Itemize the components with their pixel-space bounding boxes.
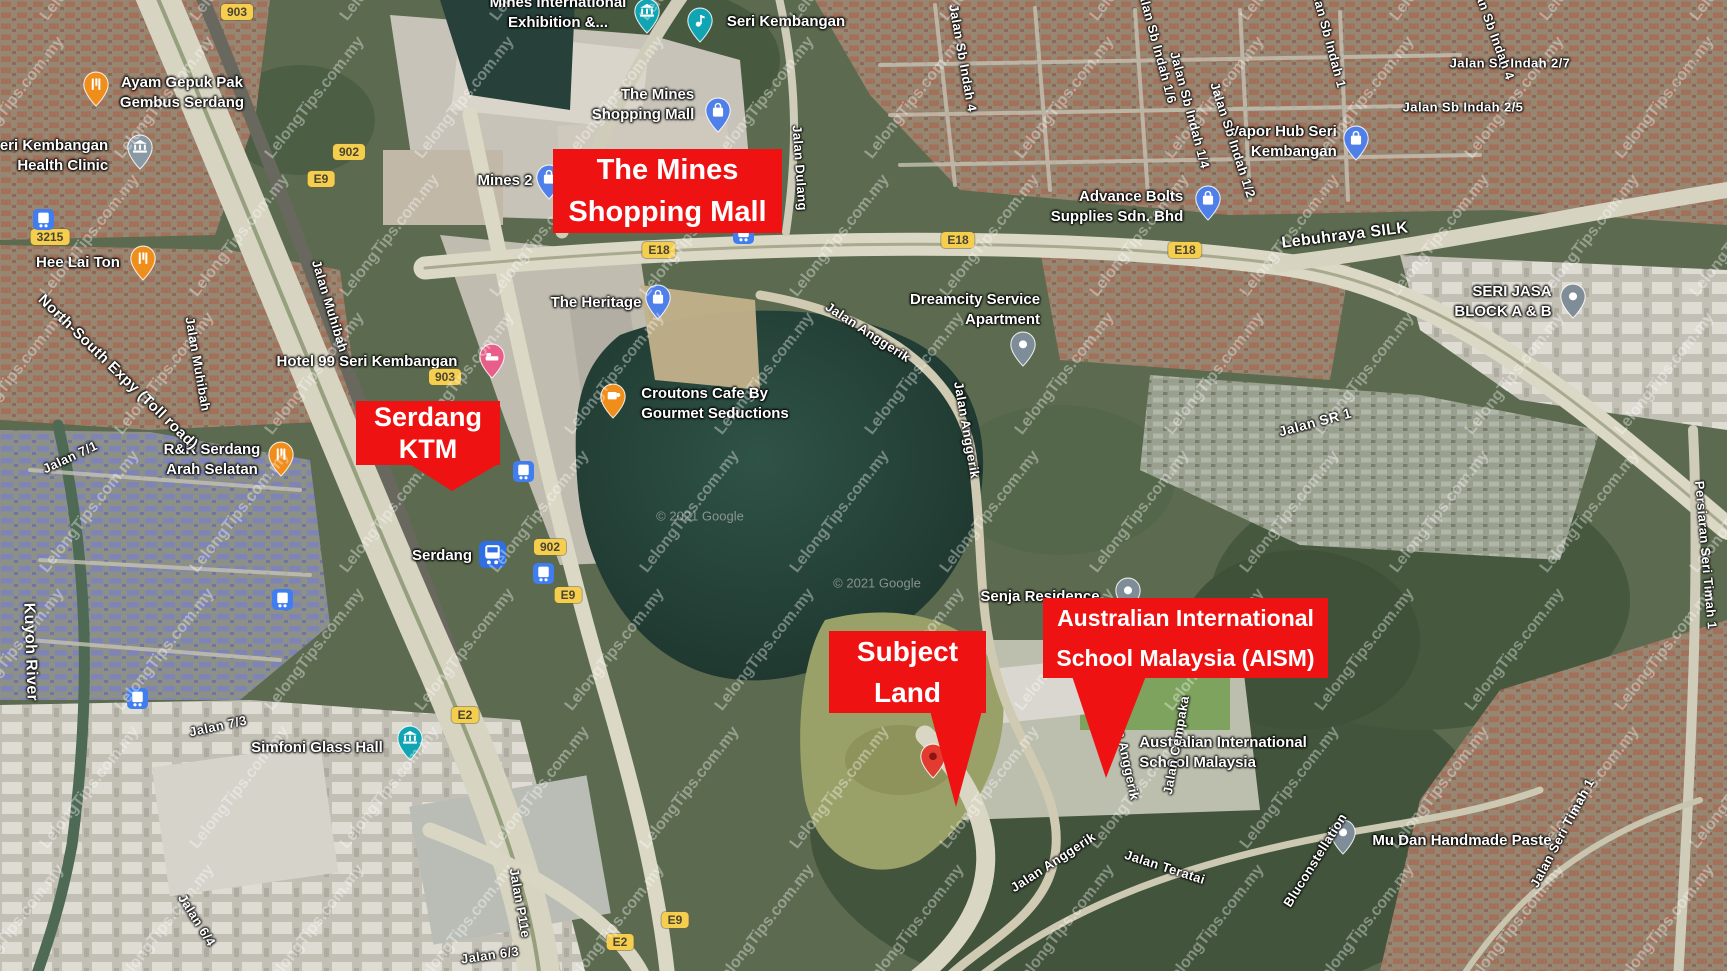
lelongtips-watermark: LelongTips.com.my [862, 33, 969, 162]
lelongtips-watermark: LelongTips.com.my [1387, 447, 1494, 576]
lelongtips-watermark: LelongTips.com.my [637, 723, 744, 852]
subject-land-annotation: SubjectLand [829, 631, 986, 713]
lelongtips-watermark: LelongTips.com.my [1087, 171, 1194, 300]
annotation-line: School Malaysia (AISM) [1043, 638, 1328, 678]
lelongtips-watermark: LelongTips.com.my [1012, 33, 1119, 162]
serdang-ktm-annotation: SerdangKTM [356, 401, 500, 465]
lelongtips-watermark: LelongTips.com.my [1462, 33, 1569, 162]
lelongtips-watermark: LelongTips.com.my [562, 33, 669, 162]
subject-land-map-marker [919, 743, 947, 784]
lelongtips-watermark: LelongTips.com.my [787, 171, 894, 300]
lelongtips-watermark: LelongTips.com.my [1237, 0, 1344, 25]
annotation-line: Australian International [1043, 598, 1328, 638]
lelongtips-watermark: LelongTips.com.my [1387, 723, 1494, 852]
lelongtips-watermark: LelongTips.com.my [1087, 723, 1194, 852]
lelongtips-watermark: LelongTips.com.my [637, 0, 744, 25]
lelongtips-watermark: LelongTips.com.my [937, 0, 1044, 25]
lelongtips-watermark: LelongTips.com.my [112, 33, 219, 162]
lelongtips-watermark: LelongTips.com.my [787, 723, 894, 852]
lelongtips-watermark: LelongTips.com.my [1237, 447, 1344, 576]
lelongtips-watermark: LelongTips.com.my [37, 171, 144, 300]
lelongtips-watermark: LelongTips.com.my [1612, 309, 1719, 438]
lelongtips-watermark: LelongTips.com.my [187, 447, 294, 576]
satellite-map-canvas[interactable]: Mines InternationalExhibition &...Seri K… [0, 0, 1727, 971]
lelongtips-watermark: LelongTips.com.my [1162, 309, 1269, 438]
annotation-line: The Mines [553, 149, 782, 191]
lelongtips-watermark: LelongTips.com.my [862, 309, 969, 438]
lelongtips-watermark: LelongTips.com.my [0, 861, 68, 971]
lelongtips-watermark: LelongTips.com.my [1162, 861, 1269, 971]
lelongtips-watermark: LelongTips.com.my [787, 447, 894, 576]
lelongtips-watermark: LelongTips.com.my [1537, 0, 1644, 25]
lelongtips-watermark: LelongTips.com.my [337, 447, 444, 576]
lelongtips-watermark: LelongTips.com.my [37, 447, 144, 576]
lelongtips-watermark: LelongTips.com.my [712, 33, 819, 162]
lelongtips-watermark: LelongTips.com.my [937, 723, 1044, 852]
lelongtips-watermark: LelongTips.com.my [412, 585, 519, 714]
lelongtips-watermark: LelongTips.com.my [487, 447, 594, 576]
lelongtips-watermark: LelongTips.com.my [1462, 309, 1569, 438]
the-mines-shopping-mall-annotation: The MinesShopping Mall [553, 149, 782, 233]
lelongtips-watermark: LelongTips.com.my [112, 861, 219, 971]
lelongtips-watermark: LelongTips.com.my [562, 861, 669, 971]
lelongtips-watermark: LelongTips.com.my [1387, 0, 1494, 25]
lelongtips-watermark: LelongTips.com.my [1537, 723, 1644, 852]
lelongtips-watermark: LelongTips.com.my [487, 0, 594, 25]
lelongtips-watermark: LelongTips.com.my [1237, 171, 1344, 300]
lelongtips-watermark: LelongTips.com.my [487, 723, 594, 852]
annotation-line: KTM [356, 433, 500, 465]
lelongtips-watermark: LelongTips.com.my [862, 861, 969, 971]
lelongtips-watermark: LelongTips.com.my [37, 723, 144, 852]
watermark-layer: LelongTips.com.myLelongTips.com.myLelong… [0, 0, 1727, 971]
lelongtips-watermark: LelongTips.com.my [637, 447, 744, 576]
annotation-line: Subject [829, 631, 986, 672]
lelongtips-watermark: LelongTips.com.my [262, 309, 369, 438]
lelongtips-watermark: LelongTips.com.my [562, 585, 669, 714]
lelongtips-watermark: LelongTips.com.my [1312, 861, 1419, 971]
lelongtips-watermark: LelongTips.com.my [1537, 171, 1644, 300]
lelongtips-watermark: LelongTips.com.my [187, 723, 294, 852]
lelongtips-watermark: LelongTips.com.my [262, 33, 369, 162]
lelongtips-watermark: LelongTips.com.my [0, 585, 68, 714]
lelongtips-watermark: LelongTips.com.my [787, 0, 894, 25]
lelongtips-watermark: LelongTips.com.my [1012, 309, 1119, 438]
lelongtips-watermark: LelongTips.com.my [412, 861, 519, 971]
lelongtips-watermark: LelongTips.com.my [712, 309, 819, 438]
lelongtips-watermark: LelongTips.com.my [1687, 171, 1727, 300]
lelongtips-watermark: LelongTips.com.my [1612, 861, 1719, 971]
lelongtips-watermark: LelongTips.com.my [1087, 0, 1194, 25]
lelongtips-watermark: LelongTips.com.my [1687, 723, 1727, 852]
annotation-line: Serdang [356, 401, 500, 433]
lelongtips-watermark: LelongTips.com.my [337, 171, 444, 300]
lelongtips-watermark: LelongTips.com.my [1312, 33, 1419, 162]
lelongtips-watermark: LelongTips.com.my [37, 0, 144, 25]
lelongtips-watermark: LelongTips.com.my [1462, 861, 1569, 971]
lelongtips-watermark: LelongTips.com.my [1687, 0, 1727, 25]
lelongtips-watermark: LelongTips.com.my [712, 585, 819, 714]
lelongtips-watermark: LelongTips.com.my [1312, 309, 1419, 438]
lelongtips-watermark: LelongTips.com.my [1612, 33, 1719, 162]
lelongtips-watermark: LelongTips.com.my [1612, 585, 1719, 714]
lelongtips-watermark: LelongTips.com.my [1687, 447, 1727, 576]
aism-annotation: Australian InternationalSchool Malaysia … [1043, 598, 1328, 678]
lelongtips-watermark: LelongTips.com.my [412, 33, 519, 162]
lelongtips-watermark: LelongTips.com.my [1387, 171, 1494, 300]
lelongtips-watermark: LelongTips.com.my [0, 309, 68, 438]
lelongtips-watermark: LelongTips.com.my [337, 0, 444, 25]
lelongtips-watermark: LelongTips.com.my [1087, 447, 1194, 576]
lelongtips-watermark: LelongTips.com.my [1462, 585, 1569, 714]
lelongtips-watermark: LelongTips.com.my [187, 0, 294, 25]
annotation-line: Land [829, 672, 986, 713]
lelongtips-watermark: LelongTips.com.my [262, 861, 369, 971]
lelongtips-watermark: LelongTips.com.my [112, 309, 219, 438]
lelongtips-watermark: LelongTips.com.my [937, 171, 1044, 300]
lelongtips-watermark: LelongTips.com.my [937, 447, 1044, 576]
lelongtips-watermark: LelongTips.com.my [0, 33, 68, 162]
lelongtips-watermark: LelongTips.com.my [1537, 447, 1644, 576]
lelongtips-watermark: LelongTips.com.my [112, 585, 219, 714]
lelongtips-watermark: LelongTips.com.my [187, 171, 294, 300]
lelongtips-watermark: LelongTips.com.my [1237, 723, 1344, 852]
annotation-line: Shopping Mall [553, 191, 782, 233]
lelongtips-watermark: LelongTips.com.my [712, 861, 819, 971]
lelongtips-watermark: LelongTips.com.my [1162, 33, 1269, 162]
lelongtips-watermark: LelongTips.com.my [262, 585, 369, 714]
lelongtips-watermark: LelongTips.com.my [337, 723, 444, 852]
lelongtips-watermark: LelongTips.com.my [1012, 861, 1119, 971]
lelongtips-watermark: LelongTips.com.my [562, 309, 669, 438]
